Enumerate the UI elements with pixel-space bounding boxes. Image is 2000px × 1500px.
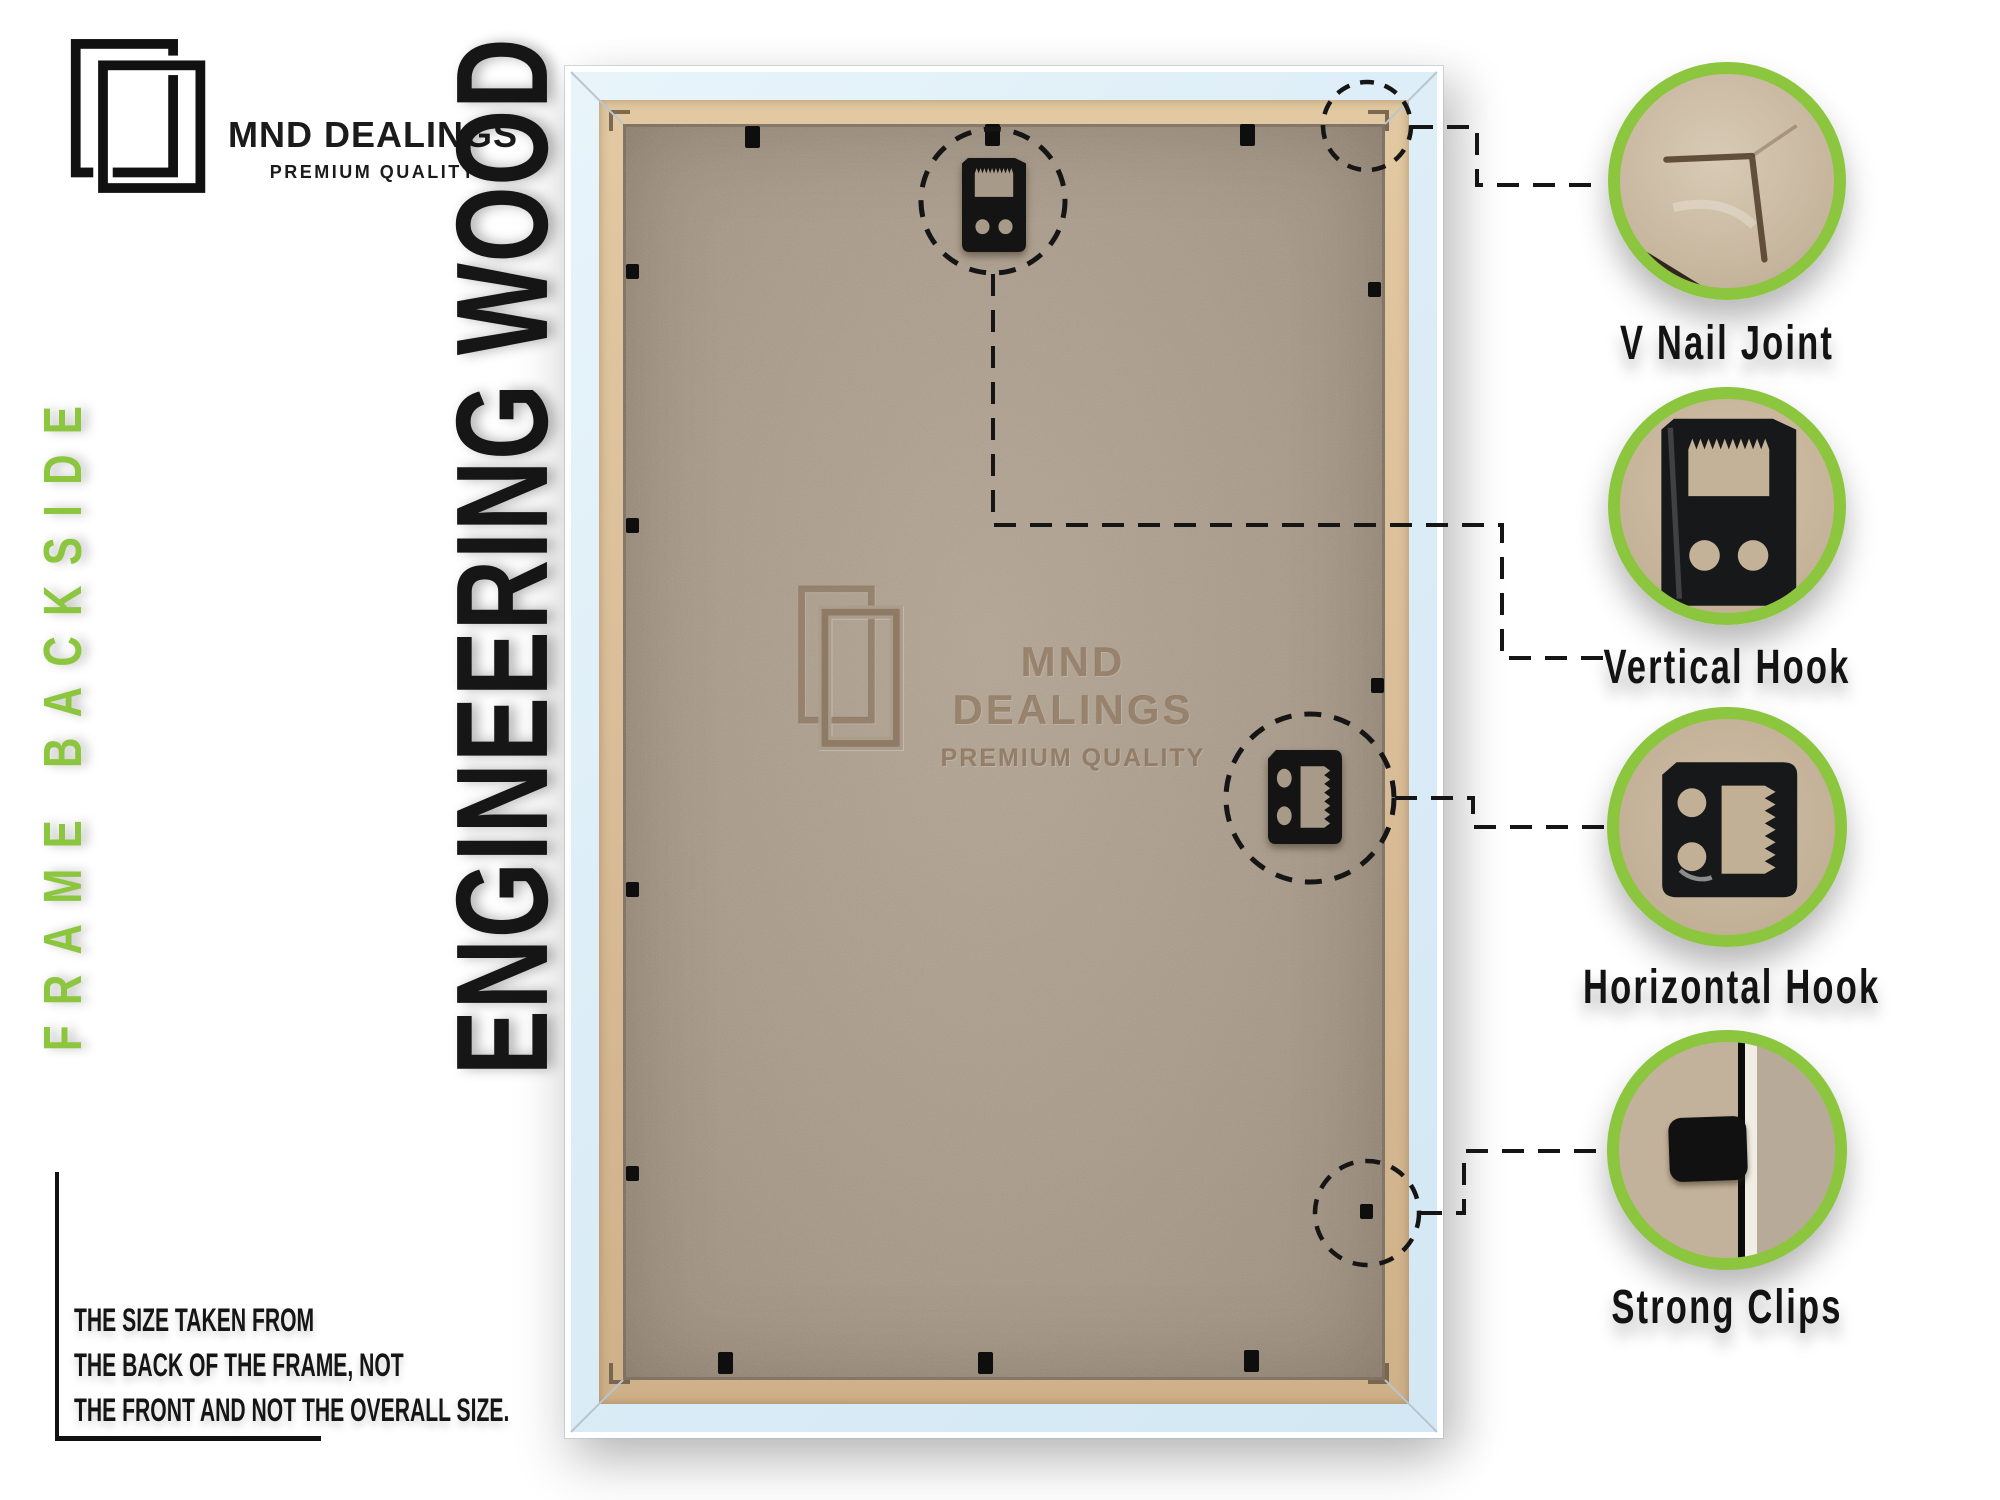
watermark-frames-logo-icon	[795, 569, 903, 765]
callout-label-vertical-hook: Vertical Hook	[1583, 640, 1871, 695]
frame-backside-label: FRAME BACKSIDE	[32, 405, 82, 1145]
back-clip	[626, 882, 639, 897]
back-clip	[1244, 1350, 1259, 1372]
back-clip	[626, 264, 639, 279]
back-clip	[1240, 124, 1255, 146]
strong-clips-closeup	[1619, 1042, 1835, 1258]
callout-circle-vertical-hook	[1608, 387, 1846, 625]
v-nail-joint-closeup	[1620, 74, 1834, 288]
vertical-hook-hardware	[962, 158, 1026, 252]
size-note-line-3: THE FRONT AND NOT THE OVERALL SIZE.	[74, 1388, 509, 1433]
horizontal-hook-hardware	[1268, 750, 1342, 844]
back-clip	[1371, 678, 1384, 693]
frame-outer-moulding: MND DEALINGS PREMIUM QUALITY	[571, 72, 1437, 1432]
v-nail-mark-top-right	[1368, 110, 1389, 131]
product-infographic: MND DEALINGS PREMIUM QUALITY FRAME BACKS…	[0, 0, 2000, 1500]
size-note-line-2: THE BACK OF THE FRAME, NOT	[74, 1343, 509, 1388]
watermark-name: MND DEALINGS	[921, 638, 1225, 734]
frame-wood-lip: MND DEALINGS PREMIUM QUALITY	[599, 100, 1409, 1404]
engineering-wood-label: ENGINEERING WOOD	[432, 205, 562, 1205]
mdf-back-board: MND DEALINGS PREMIUM QUALITY	[623, 124, 1385, 1380]
callout-circle-horizontal-hook	[1607, 707, 1847, 947]
callout-circle-v-nail-joint	[1608, 62, 1846, 300]
note-bracket-horizontal	[55, 1436, 321, 1441]
back-clip	[718, 1352, 733, 1374]
back-clip	[985, 124, 1000, 146]
back-clip	[978, 1352, 993, 1374]
callout-label-horizontal-hook: Horizontal Hook	[1583, 960, 1871, 1015]
v-nail-mark-bottom-left	[609, 1363, 630, 1384]
back-clip	[626, 1166, 639, 1181]
watermark-text: MND DEALINGS PREMIUM QUALITY	[921, 638, 1225, 773]
v-nail-mark-top-left	[609, 110, 630, 131]
watermark: MND DEALINGS PREMIUM QUALITY	[795, 560, 1225, 773]
v-nail-mark-bottom-right	[1368, 1363, 1389, 1384]
watermark-tagline: PREMIUM QUALITY	[921, 744, 1225, 773]
size-note-line-1: THE SIZE TAKEN FROM	[74, 1298, 509, 1343]
back-clip	[1360, 1204, 1373, 1219]
callout-circle-strong-clips	[1607, 1030, 1847, 1270]
back-clip	[626, 518, 639, 533]
callout-label-strong-clips: Strong Clips	[1583, 1280, 1871, 1335]
horizontal-hook-closeup	[1619, 719, 1835, 935]
note-bracket-vertical	[55, 1172, 59, 1440]
frame-backside-photo: MND DEALINGS PREMIUM QUALITY	[565, 66, 1443, 1438]
brand-frames-logo-icon	[66, 36, 214, 194]
back-clip	[1368, 282, 1381, 297]
back-clip	[745, 126, 760, 148]
clip-closeup	[1668, 1116, 1748, 1183]
frame-edge-zone	[1757, 1042, 1835, 1258]
callout-label-v-nail-joint: V Nail Joint	[1583, 316, 1871, 371]
vertical-hook-closeup	[1620, 399, 1834, 613]
